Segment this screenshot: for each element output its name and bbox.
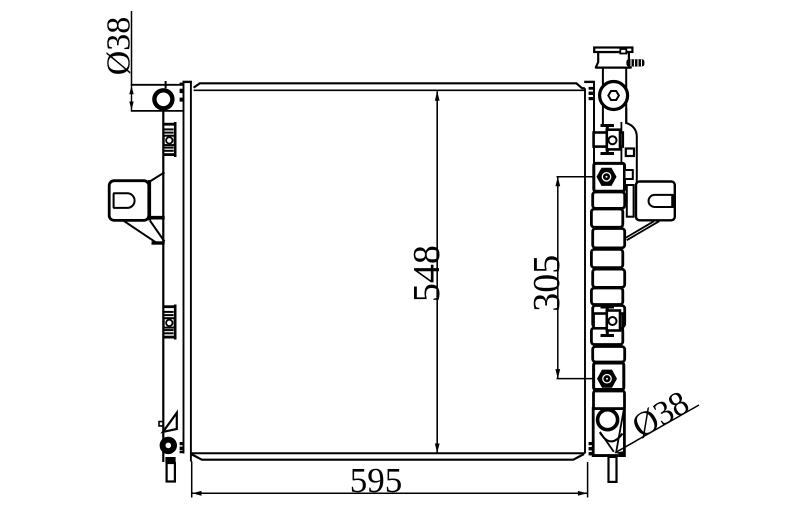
svg-text:595: 595 — [350, 461, 403, 500]
svg-text:548: 548 — [406, 245, 448, 302]
svg-text:305: 305 — [526, 255, 568, 312]
svg-text:Ø38: Ø38 — [101, 17, 138, 76]
